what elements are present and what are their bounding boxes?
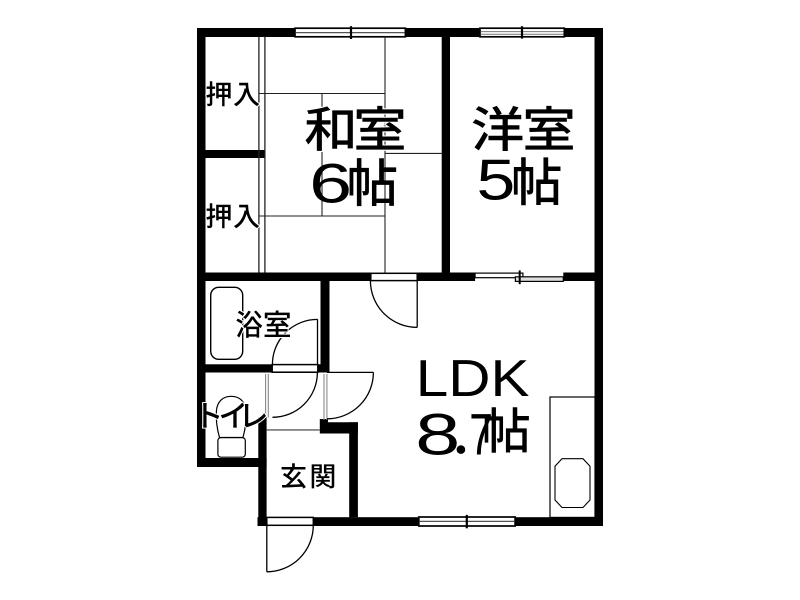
svg-text:7: 7 bbox=[469, 402, 493, 467]
svg-text:8: 8 bbox=[415, 402, 460, 467]
svg-text:5: 5 bbox=[477, 149, 516, 213]
svg-text:LDK: LDK bbox=[416, 350, 530, 408]
svg-text:6: 6 bbox=[309, 153, 352, 215]
